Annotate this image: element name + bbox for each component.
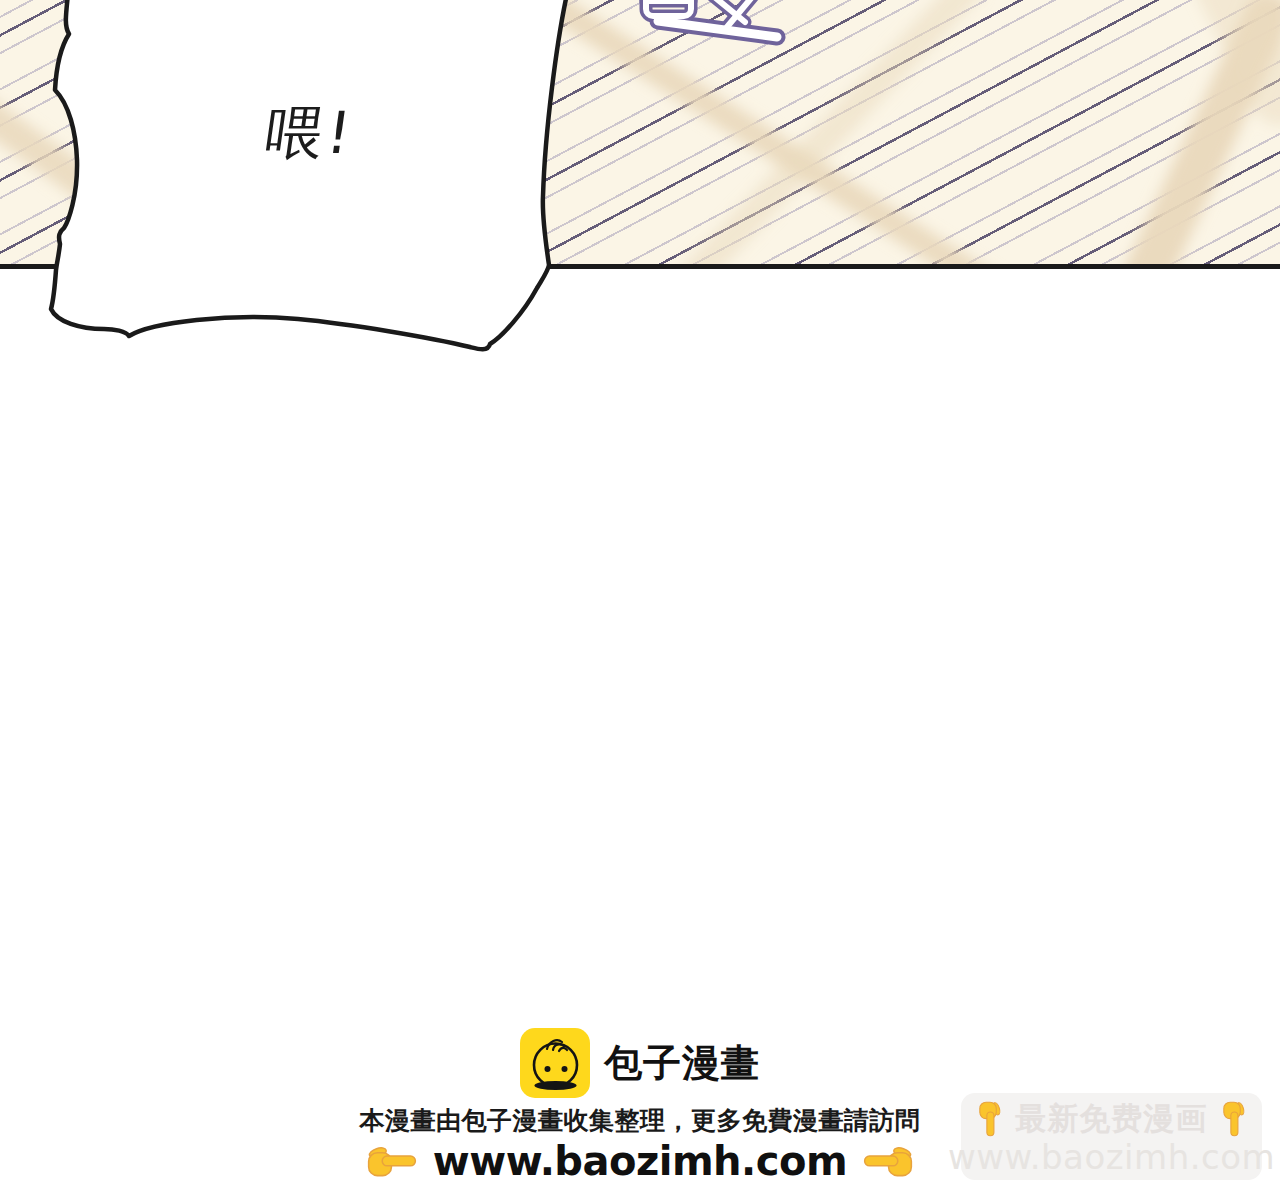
corner-url-text: www.baozimh.com — [948, 1140, 1275, 1174]
corner-title-row: 最新免费漫画 — [972, 1099, 1252, 1139]
corner-watermark: 最新免费漫画 www.baozimh.com — [961, 1093, 1262, 1180]
corner-title-text: 最新免费漫画 — [1016, 1098, 1208, 1140]
point-right-hand-icon — [367, 1145, 417, 1178]
point-down-hand-icon — [1222, 1101, 1246, 1137]
baozi-logo-row: 包子漫畫 — [0, 1028, 1280, 1098]
logo-title: 包子漫畫 — [604, 1038, 760, 1089]
baozi-bun-icon — [520, 1028, 590, 1098]
speech-bubble — [0, 0, 600, 380]
footer-url-text: www.baozimh.com — [433, 1138, 847, 1184]
speech-text: 喂! — [262, 102, 358, 164]
comic-page: 喂! 包子漫畫 本漫畫由包子漫畫收集整理，更多免費漫畫請訪問 www.bao — [0, 0, 1280, 1200]
point-left-hand-icon — [863, 1145, 913, 1178]
point-down-hand-icon — [978, 1101, 1002, 1137]
